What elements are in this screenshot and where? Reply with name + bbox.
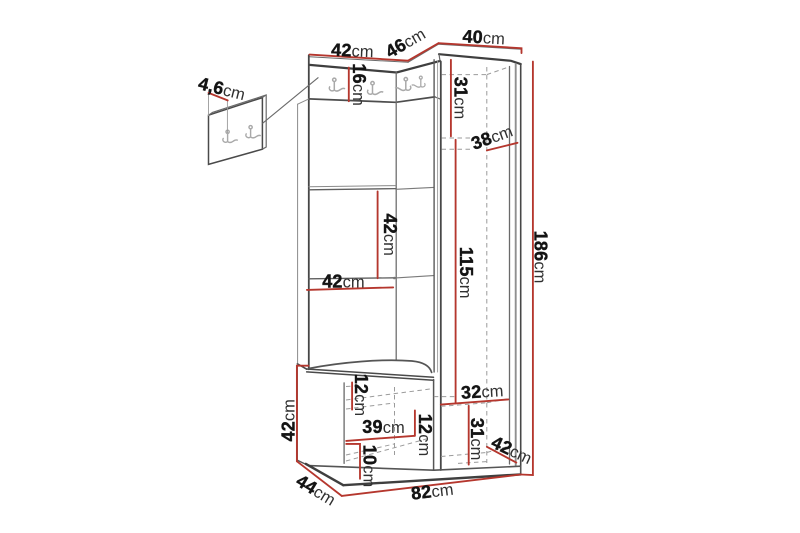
svg-text:31cm: 31cm [451,77,471,119]
svg-text:186cm: 186cm [530,231,550,284]
svg-text:10cm: 10cm [359,445,379,487]
svg-text:115cm: 115cm [456,247,476,299]
svg-text:31cm: 31cm [467,418,487,460]
svg-text:32cm: 32cm [460,380,504,403]
svg-text:42cm: 42cm [380,214,400,256]
svg-text:40cm: 40cm [462,26,505,48]
svg-text:42cm: 42cm [331,40,374,61]
svg-text:12cm: 12cm [351,374,371,416]
svg-text:42cm: 42cm [322,271,364,291]
svg-text:42cm: 42cm [278,399,298,441]
svg-text:16cm: 16cm [349,63,369,105]
svg-text:12cm: 12cm [415,414,435,456]
svg-text:39cm: 39cm [362,417,404,437]
